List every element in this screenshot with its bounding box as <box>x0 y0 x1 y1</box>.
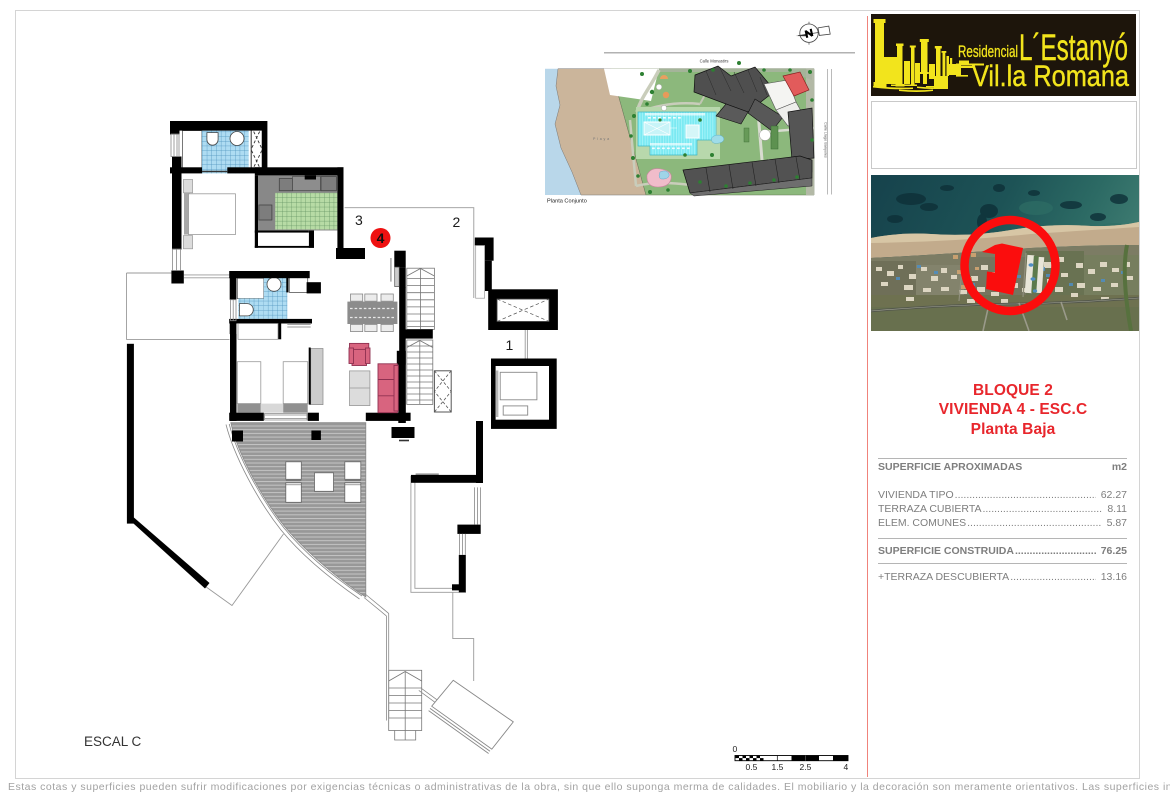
svg-text:Vil.la Romana: Vil.la Romana <box>972 60 1129 93</box>
svg-text:4: 4 <box>844 762 849 772</box>
svg-text:0: 0 <box>733 744 738 754</box>
svg-text:2: 2 <box>453 214 461 230</box>
svg-text:P l a y a: P l a y a <box>593 137 610 141</box>
svg-text:1.5: 1.5 <box>772 762 784 772</box>
svg-text:Planta Conjunto: Planta Conjunto <box>547 199 587 205</box>
svg-text:0.5: 0.5 <box>746 762 758 772</box>
svg-text:3: 3 <box>355 212 363 228</box>
svg-text:2.5: 2.5 <box>800 762 812 772</box>
svg-text:1: 1 <box>506 337 514 353</box>
svg-text:Calle Monastirs: Calle Monastirs <box>700 59 729 64</box>
svg-text:Residencial: Residencial <box>958 42 1018 61</box>
svg-text:Calle Llago Banyoles: Calle Llago Banyoles <box>824 122 828 158</box>
svg-text:4: 4 <box>377 230 385 246</box>
